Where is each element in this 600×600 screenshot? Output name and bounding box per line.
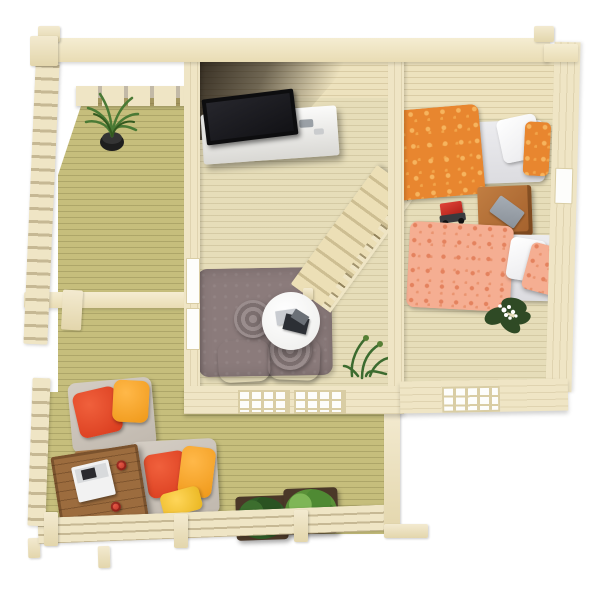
small-decor [314,128,324,135]
terrace-post-2 [174,514,188,548]
terrace-door-foot [384,524,428,538]
front-wall-bedroom [400,379,569,414]
remote-decor [299,119,314,128]
grey-book [489,195,525,229]
bed-orange-pillow-orange [523,121,552,176]
bedroom-flower-plant [480,286,532,336]
flower-plant-graphic [480,286,532,336]
beam-nub-right [534,26,554,42]
bedroom-front-window [442,386,500,413]
living-side-window-slot-2 [186,308,200,350]
floor-pouf-left [217,339,271,384]
terrace-post-1 [44,512,58,546]
wall-living-bedroom [388,48,404,394]
terrace-foot-1 [98,546,111,568]
wall-porch-living [184,60,200,394]
living-front-window-1 [238,390,290,414]
beam-right-extension [544,44,578,62]
porch-potted-plant [84,88,140,152]
bed-orange [401,109,552,194]
front-wall-living [184,386,404,414]
living-side-window-slot-1 [186,258,200,304]
pergola-post [61,290,83,331]
red-cup-1 [116,460,127,471]
living-front-window-2 [294,390,346,414]
cabin-floor-plan-render [0,0,600,600]
roof-beam-top [34,38,550,62]
fern-plant-graphic [342,330,392,382]
bedroom-side-window-slot [554,168,573,204]
palm-plant-graphic [84,88,140,152]
porch-corner-post [30,36,58,66]
laptop [71,459,116,503]
bed-orange-duvet [390,104,486,201]
living-corner-plant [342,330,392,382]
terrace-door-post [384,410,400,536]
terrace-post-3 [294,510,308,542]
round-coffee-table [262,292,320,350]
lounge-upper-orange-pillow [112,379,150,423]
tv-screen [206,93,294,141]
red-cup-2 [110,501,121,512]
